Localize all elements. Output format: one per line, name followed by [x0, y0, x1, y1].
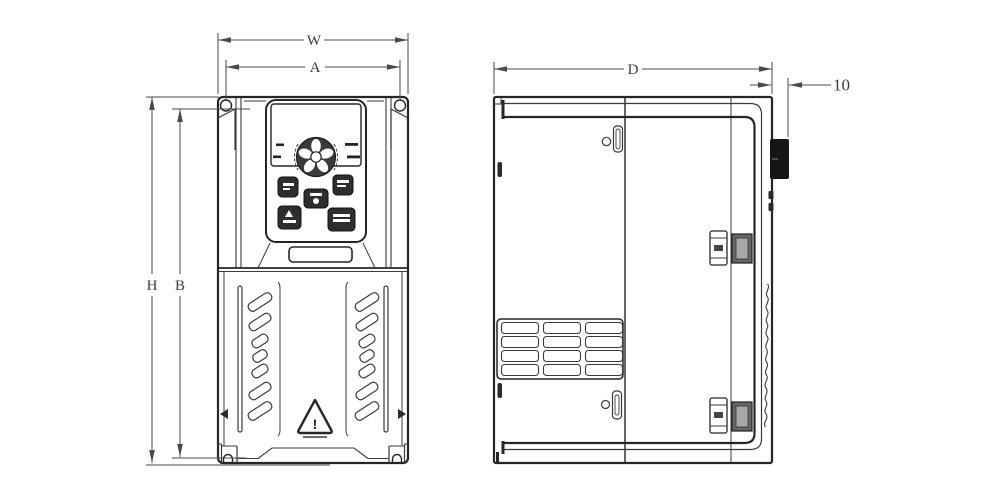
- screw-tab-bottom: [602, 391, 622, 419]
- dim-label-h: H: [147, 278, 158, 294]
- cover-separator: [218, 268, 408, 272]
- rear-mark-top: [769, 191, 774, 199]
- dimension-mounting-width: A: [226, 60, 400, 99]
- keypad-button-top-right: [333, 175, 353, 195]
- left-wall-slot-top: [498, 162, 503, 177]
- dimension-drawing: !: [0, 0, 1000, 488]
- side-enclosure-outline: [494, 97, 772, 463]
- keypad-buttons: [278, 175, 355, 231]
- vent-slots-right: [354, 291, 381, 422]
- vent-slots-left: [247, 291, 274, 422]
- screw-tab-top: [602, 126, 622, 152]
- dimension-overall-depth: D: [494, 62, 772, 94]
- left-wall-slot-bottom: [498, 383, 503, 398]
- rear-protrusion-block: [770, 139, 789, 179]
- keypad-panel: [258, 100, 375, 268]
- mounting-foot-right: [389, 444, 408, 463]
- chassis-band: [498, 100, 762, 464]
- rear-mark-bottom: [769, 203, 774, 211]
- keypad-button-bottom-right: [328, 208, 355, 231]
- keypad-button-center: [304, 189, 328, 208]
- dim-label-a: A: [310, 60, 321, 76]
- keypad-button-bottom-left: [278, 206, 301, 229]
- dimension-protrusion-depth: 10: [750, 76, 850, 138]
- technical-drawing-page: !: [0, 0, 1000, 488]
- side-view: D 10: [494, 62, 850, 464]
- warning-triangle-icon: !: [298, 400, 332, 437]
- keypad-lower-cover: [289, 247, 352, 262]
- vent-grid: [497, 319, 623, 379]
- lower-cover: !: [218, 272, 408, 463]
- dim-label-b: B: [175, 278, 185, 294]
- warning-glyph: !: [313, 416, 318, 432]
- dim-label-d: D: [628, 62, 639, 78]
- mounting-hole-top-right: [395, 100, 406, 111]
- front-view: !: [146, 33, 408, 465]
- mounting-foot-left: [218, 444, 237, 463]
- jog-dial-icon: [295, 138, 338, 177]
- keypad-button-top-left: [278, 177, 298, 197]
- bottom-contour: [237, 448, 389, 459]
- dim-label-w: W: [307, 33, 322, 49]
- heatsink-fin-texture: [765, 284, 769, 427]
- dim-label-10: 10: [833, 76, 850, 95]
